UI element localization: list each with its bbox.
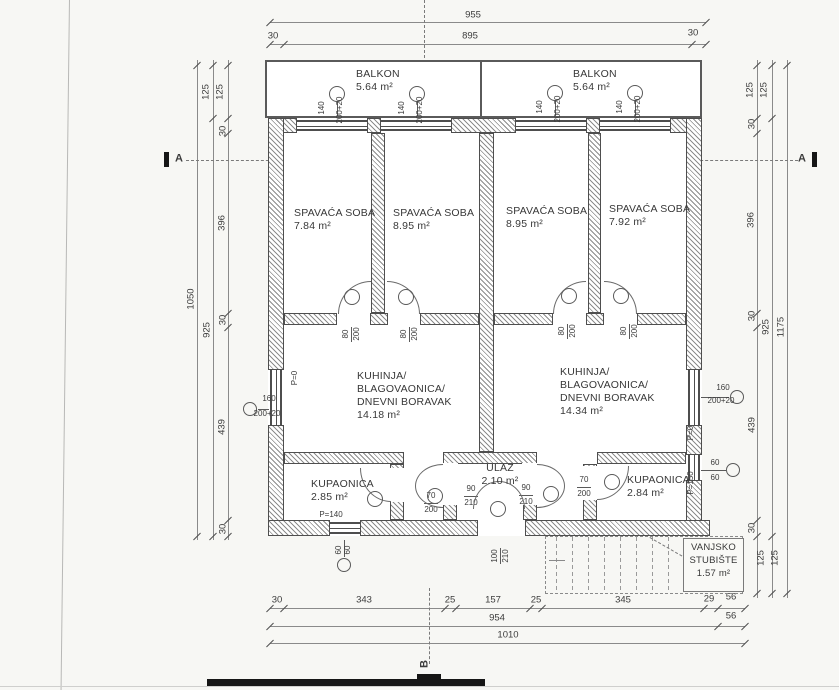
wall-right [686,118,702,370]
window-size-label: 140 [398,101,406,114]
dim-right-living: 439 [747,417,757,433]
window-size-label: 60 [335,546,343,555]
dim-bottom-seg4: 29 [704,594,715,604]
dim-right-stair-b: 125 [770,550,780,566]
window-size-label: 200+20 [336,97,344,124]
window-mark-circle [726,463,740,477]
dim-line-left-mid [213,60,214,540]
window-size-label: 60 [711,474,720,482]
room-label-balkon-left: BALKON 5.64 m² [356,68,400,94]
window-right-living [688,370,700,425]
dim-right-bedroom: 396 [746,212,756,228]
window-size-label: 160 [262,395,275,403]
dim-left-wall-mid: 30 [218,315,228,326]
room-label-bedroom4: SPAVAĆA SOBA 7.92 m² [609,203,690,229]
room-label-living-right: KUHINJA/ BLAGOVAONICA/ DNEVNI BORAVAK 14… [560,366,655,418]
room-area: 5.64 m² [573,81,617,94]
dim-top-overall: 955 [465,10,481,20]
dim-bottom-gap1: 25 [445,595,456,605]
room-area: 8.95 m² [506,218,587,231]
room-label-balkon-right: BALKON 5.64 m² [573,68,617,94]
dim-line-right-mid [772,60,773,598]
dim-right-wall-bottom: 30 [747,523,757,534]
door-size-label: 70 [580,476,589,484]
title-bar-line [207,679,485,686]
room-area: 14.34 m² [560,405,655,418]
dim-right-wall-top: 30 [747,119,757,130]
parapet-label: P=0 [291,371,299,385]
window-balcony-1 [297,120,367,131]
window-size-label: 200+20 [554,96,562,123]
window-size-label: 60 [711,459,720,467]
door-size-label: 80 [558,327,566,336]
room-label-bedroom1: SPAVAĆA SOBA 7.84 m² [294,207,375,233]
dim-right-balcony-a: 125 [745,82,755,98]
dim-bottom-seg2: 157 [485,595,501,605]
window-size-label: 200+20 [254,410,281,418]
room-label-stairs: VANJSKO STUBIŠTE 1.57 m² [684,541,743,580]
room-area: 5.64 m² [356,81,400,94]
section-line-b-bottom [429,588,430,664]
dim-left-wall-top: 30 [218,126,228,137]
door-size-label: 200 [631,324,639,337]
dim-top-inner: 895 [462,31,478,41]
room-area: 2.84 m² [627,487,690,500]
section-marker-a-right-bar [812,152,817,167]
room-label-bedroom3: SPAVAĆA SOBA 8.95 m² [506,205,587,231]
page-bottom-line [0,686,839,687]
dim-line-bottom-1 [270,608,745,609]
window-bottom-bath [330,522,360,534]
section-label-b: B [420,660,431,668]
floor-plan-canvas: 955 30 895 30 125 125 30 396 30 439 30 9… [0,0,839,690]
dim-left-balcony-a: 125 [201,84,211,100]
room-area: 2.10 m² [473,475,527,488]
door-size-label: 80 [400,330,408,339]
dim-right-body: 925 [761,319,771,335]
dim-left-body: 925 [202,322,212,338]
dim-bottom-gap2: 25 [531,595,542,605]
room-area: 7.92 m² [609,216,690,229]
window-size-label: 60 [344,546,352,555]
dim-bottom-subtotal: 954 [489,613,505,623]
door-size-label: 80 [342,330,350,339]
dim-top-margin-right: 30 [688,28,699,38]
window-mark-circle [337,558,351,572]
room-label-bath-left: KUPAONICA 2.85 m² [311,478,374,504]
balcony-divider [480,60,482,118]
section-marker-a-left-bar [164,152,169,167]
dim-right-wall-mid: 30 [747,311,757,322]
door-size-label: 200 [569,324,577,337]
dim-top-margin-left: 30 [268,31,279,41]
parapet-label: P=0 [687,426,695,440]
dim-bottom-seg1: 343 [356,595,372,605]
door-size-label: 100 [491,549,499,562]
door-size-label: 200 [411,327,419,340]
door-size-label: 200 [577,490,590,498]
room-area: 1.57 m² [684,567,743,580]
stairs-direction-line [549,560,565,561]
dim-line-bottom-3 [270,643,745,644]
window-size-label: 140 [318,101,326,114]
window-size-label: 200+20 [634,96,642,123]
dim-bottom-total: 1010 [497,630,518,640]
dim-line-bottom-2 [270,626,745,627]
room-area: 7.84 m² [294,220,375,233]
door-size-label: 200 [353,327,361,340]
dim-bottom-margin: 30 [272,595,283,605]
dim-left-living: 439 [217,419,227,435]
room-label-bath-right: KUPAONICA 2.84 m² [627,474,690,500]
window-size-label: 160 [716,384,729,392]
room-area: 14.18 m² [357,409,452,422]
door-size-label: 80 [620,327,628,336]
dim-left-balcony-b: 125 [215,84,225,100]
window-size-label: 200+20 [708,397,735,405]
window-balcony-3 [516,120,586,131]
dim-left-bedroom: 396 [217,215,227,231]
dim-right-balcony-b: 125 [759,82,769,98]
room-label-living-left: KUHINJA/ BLAGOVAONICA/ DNEVNI BORAVAK 14… [357,370,452,422]
dim-bottom-edge: 56 [726,611,737,621]
wall-left [268,118,284,370]
dim-right-stair-a: 125 [756,550,766,566]
parapet-label: P=140 [319,511,342,519]
window-size-label: 200+20 [416,97,424,124]
window-size-label: 140 [616,100,624,113]
dim-line-right-outer [787,60,788,598]
dim-bottom-seg3: 345 [615,595,631,605]
room-area: 8.95 m² [393,220,474,233]
room-label-ulaz: ULAZ 2.10 m² [473,462,527,488]
wall-party [479,133,494,452]
window-size-label: 140 [536,100,544,113]
wall-bottom [268,520,330,536]
section-label-a-right: A [798,154,806,165]
dim-line-top-inner [270,44,706,45]
section-label-a-left: A [175,154,183,165]
page-edge-line [61,0,70,690]
dim-right-overall: 1175 [776,317,786,337]
dim-left-overall: 1050 [186,288,196,309]
wall-bed34 [588,133,601,313]
door-size-label: 210 [502,549,510,562]
room-label-bedroom2: SPAVAĆA SOBA 8.95 m² [393,207,474,233]
room-area: 2.85 m² [311,491,374,504]
dim-line-top-overall [270,22,706,23]
dim-line-left-outer [197,60,198,540]
dim-left-wall-bottom: 30 [218,524,228,535]
